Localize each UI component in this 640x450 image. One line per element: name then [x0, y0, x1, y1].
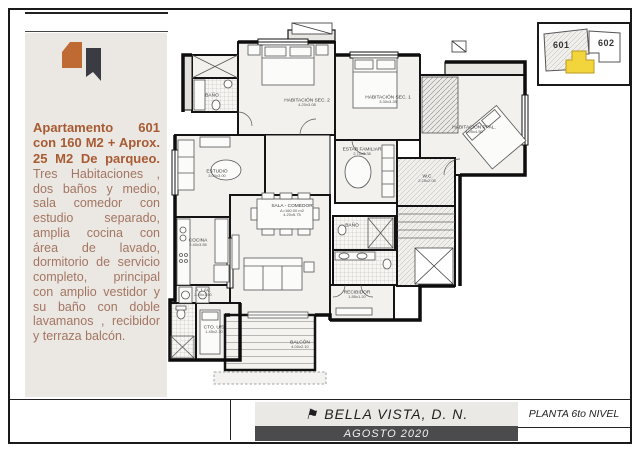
page: BAÑO HABITACIÓN SEC. 24.20x3.08 HABITACI… — [0, 0, 640, 450]
page-border — [8, 8, 632, 444]
